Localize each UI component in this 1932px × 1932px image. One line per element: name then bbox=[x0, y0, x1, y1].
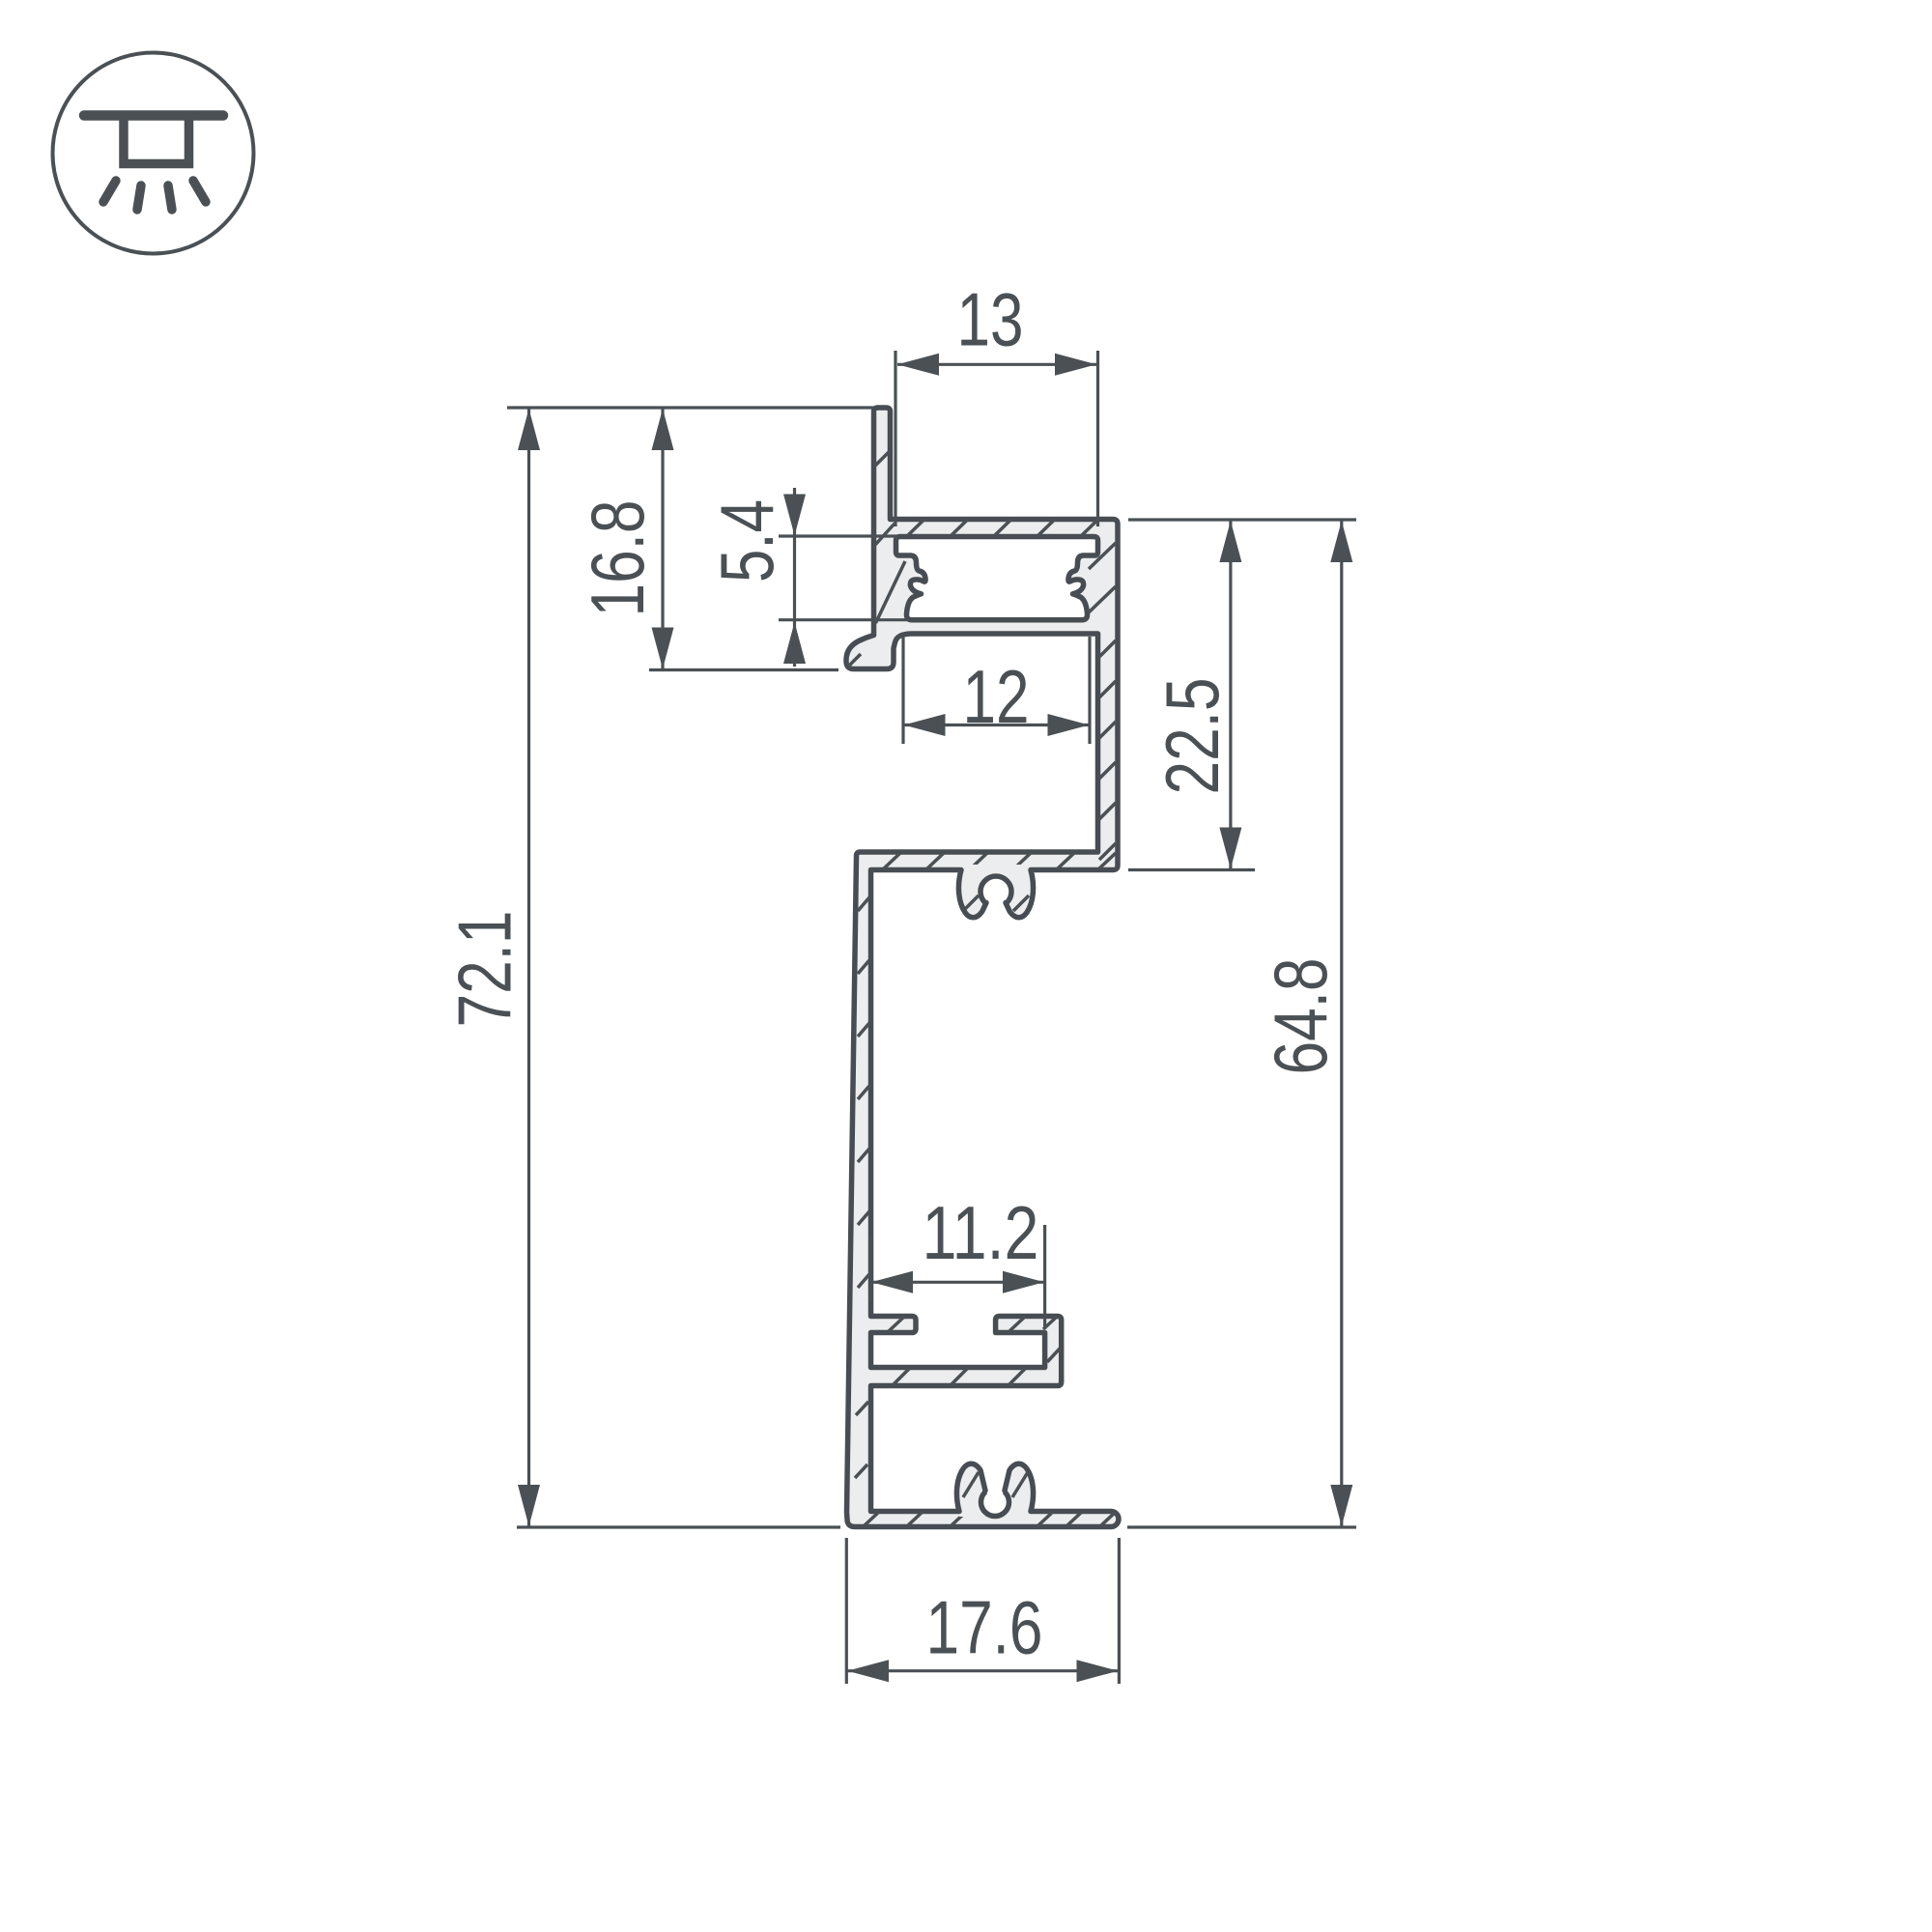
svg-text:64.8: 64.8 bbox=[1260, 958, 1343, 1075]
svg-text:17.6: 17.6 bbox=[926, 1587, 1043, 1670]
svg-text:16.8: 16.8 bbox=[577, 500, 660, 617]
svg-text:5.4: 5.4 bbox=[706, 499, 789, 582]
svg-text:12: 12 bbox=[963, 656, 1030, 739]
svg-text:72.1: 72.1 bbox=[444, 911, 527, 1028]
svg-text:22.5: 22.5 bbox=[1151, 678, 1235, 795]
svg-text:13: 13 bbox=[957, 279, 1024, 362]
svg-text:11.2: 11.2 bbox=[923, 1192, 1039, 1275]
